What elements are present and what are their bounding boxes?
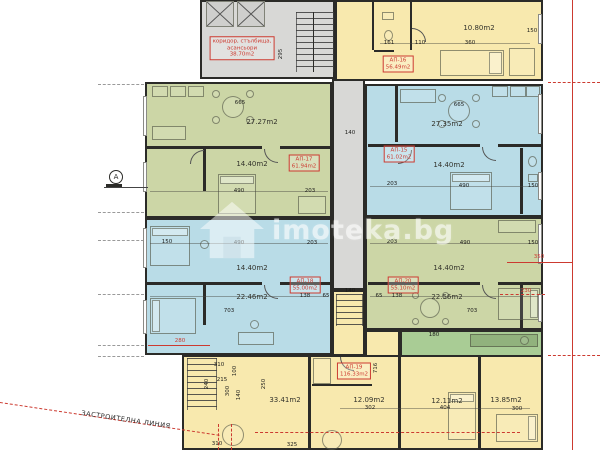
dimension-label: 300	[512, 406, 523, 412]
dimension-label: 490	[460, 240, 471, 246]
room-area-label: 22.46m2	[236, 293, 267, 301]
dimension-label: 138	[392, 293, 403, 299]
window	[143, 300, 147, 334]
dimension-label: 180	[429, 332, 440, 338]
dimension-label: 295	[278, 49, 284, 60]
partition-wall	[478, 357, 481, 450]
chair	[212, 90, 220, 98]
chair	[412, 318, 419, 325]
partition-wall	[520, 148, 523, 214]
apartment-tag: АП-1561.02m2	[384, 146, 415, 163]
kitchen-counter	[188, 86, 204, 97]
regulation-line-dashed	[548, 355, 600, 356]
chair	[200, 240, 209, 249]
elevator-x-icon	[238, 2, 264, 26]
wardrobe	[298, 196, 326, 214]
dimension-label: 140	[236, 390, 242, 401]
chair	[250, 320, 259, 329]
dimension-label: 716	[373, 363, 379, 374]
chair	[472, 94, 480, 102]
room-area-label: 14.40m2	[433, 264, 464, 272]
dimension-label: 215	[217, 377, 228, 383]
dimension-label: 150	[527, 28, 538, 34]
room-area-label: 12.09m2	[353, 396, 384, 404]
dimension-label: 240	[204, 379, 210, 390]
window	[143, 228, 147, 268]
room-area-label: 10.80m2	[463, 24, 494, 32]
toilet	[528, 156, 537, 167]
partition-wall	[498, 144, 543, 147]
dimension-label: 140	[345, 130, 356, 136]
dimension-label: 110	[415, 40, 426, 46]
dimension-label: 150	[528, 240, 539, 246]
elevator-x-icon	[207, 2, 233, 26]
dimension-label: 203	[305, 188, 316, 194]
corridor	[332, 79, 365, 290]
chair	[472, 120, 480, 128]
dimension-label: 404	[440, 405, 451, 411]
apartment-tag: АП-2055.10m2	[388, 277, 419, 294]
internal-staircase	[187, 358, 217, 410]
room-area-label: 14.40m2	[433, 161, 464, 169]
kitchen-counter	[170, 86, 186, 97]
bed-pillow	[152, 228, 188, 236]
window	[538, 14, 542, 44]
witness-line	[98, 212, 144, 213]
dimension-label: 150	[162, 239, 173, 245]
room-area-label: 14.40m2	[236, 160, 267, 168]
red-dimension-line	[500, 294, 545, 295]
dimension-label: 490	[234, 188, 245, 194]
dimension-label: 310	[212, 441, 223, 447]
red-guide-line	[255, 432, 520, 433]
kitchen-counter	[492, 86, 508, 97]
chair	[212, 116, 220, 124]
dimension-label: 360	[465, 40, 476, 46]
dimension-label: 490	[459, 183, 470, 189]
red-dimension-line	[507, 262, 573, 263]
dimension-label: 302	[365, 405, 376, 411]
room-area-label: 33.41m2	[269, 396, 300, 404]
room-area-label: 12.11m2	[431, 397, 462, 405]
dimension-label: 310	[214, 362, 225, 368]
partition-wall	[312, 384, 372, 386]
red-dimension-line	[148, 345, 210, 346]
dimension-label: 65	[376, 293, 383, 299]
dimension-label: 100	[232, 366, 238, 377]
sofa	[152, 126, 186, 140]
dining-table	[222, 424, 244, 446]
wardrobe	[509, 48, 535, 76]
dimension-label: 138	[300, 293, 311, 299]
kitchen-sink	[520, 336, 529, 345]
regulation-line-vertical	[572, 0, 573, 450]
apartment-tag: АП-19116.33m2	[337, 363, 371, 380]
chair	[438, 94, 446, 102]
window	[143, 96, 147, 136]
apartment-tag: АП-1656.49m2	[383, 56, 414, 73]
red-guide-tick	[231, 424, 232, 450]
floor-plan: коридор, стълбища, асансьори 38.70m2	[0, 0, 600, 450]
wardrobe	[498, 220, 536, 233]
dimension-label: 490	[234, 240, 245, 246]
stair-core-label-area: 38.70m2	[213, 51, 272, 58]
dimension-label: 230	[521, 288, 532, 294]
dimension-label: 703	[467, 308, 478, 314]
dimension-label: 150	[528, 183, 539, 189]
stair-core-label-line1: коридор, стълбища,	[213, 38, 272, 45]
partition-wall	[398, 357, 401, 450]
kitchen-counter	[510, 86, 526, 97]
dimension-label: 161	[384, 40, 395, 46]
witness-line	[98, 240, 144, 241]
witness-line	[98, 345, 144, 346]
stair-core-label: коридор, стълбища, асансьори 38.70m2	[210, 36, 275, 60]
dimension-label: 665	[454, 102, 465, 108]
partition-wall	[372, 0, 374, 50]
dining-table	[420, 298, 440, 318]
apartment-tag: АП-1855.00m2	[290, 277, 321, 294]
wardrobe	[313, 358, 331, 384]
regulation-line-dashed	[548, 82, 600, 83]
dimension-chain	[380, 43, 530, 44]
dimension-label: 140	[345, 288, 356, 294]
window	[538, 94, 542, 134]
building-line-label: ЗАСТРОИТЕЛНА ЛИНИЯ	[81, 409, 171, 430]
dimension-label: 665	[235, 100, 246, 106]
desk	[238, 332, 274, 345]
axis-letter: А	[114, 173, 119, 181]
bed-pillow	[452, 174, 490, 182]
dimension-label: 280	[175, 338, 186, 344]
dimension-label: 325	[287, 442, 298, 448]
dimension-label: 203	[387, 239, 398, 245]
staircase	[296, 12, 334, 72]
room-area-label: 13.85m2	[490, 396, 521, 404]
sofa	[400, 89, 436, 103]
partition-wall	[280, 146, 332, 149]
elevator-shaft	[206, 1, 234, 27]
witness-line	[98, 84, 144, 85]
dimension-label: 203	[387, 181, 398, 187]
dimension-label: 65	[323, 293, 330, 299]
room-area-label: 27.35m2	[431, 120, 462, 128]
partition-wall	[203, 285, 206, 325]
apartment-tag: АП-1761.94m2	[289, 155, 320, 172]
entry-stairs	[336, 294, 363, 326]
dining-table	[322, 430, 342, 450]
bed-pillow	[528, 416, 536, 440]
bed-pillow	[489, 52, 502, 74]
dimension-label: 250	[261, 379, 267, 390]
stair-stringer	[313, 12, 314, 72]
dimension-label: 203	[307, 240, 318, 246]
room-area-label: 22.56m2	[431, 293, 462, 301]
dimension-label: 300	[225, 386, 231, 397]
room-area-label: 27.27m2	[246, 118, 277, 126]
sink	[382, 12, 394, 20]
dimension-label: 350	[534, 254, 545, 260]
axis-line	[104, 187, 148, 188]
room-area-label: 14.40m2	[236, 264, 267, 272]
chair	[246, 90, 254, 98]
witness-line	[98, 356, 144, 357]
chair	[442, 318, 449, 325]
partition-wall	[395, 86, 398, 142]
partition-wall	[308, 357, 311, 450]
axis-marker: А	[109, 170, 123, 184]
bed-pillow	[220, 176, 254, 184]
dimension-label: 703	[224, 308, 235, 314]
partition-wall	[368, 282, 480, 285]
apartment-ap19-bath	[365, 330, 400, 357]
partition-wall	[374, 50, 394, 52]
witness-line	[98, 294, 144, 295]
window	[538, 294, 542, 322]
elevator-shaft	[237, 1, 265, 27]
kitchen-counter	[152, 86, 168, 97]
bed-pillow	[152, 300, 160, 332]
sink	[528, 174, 538, 182]
